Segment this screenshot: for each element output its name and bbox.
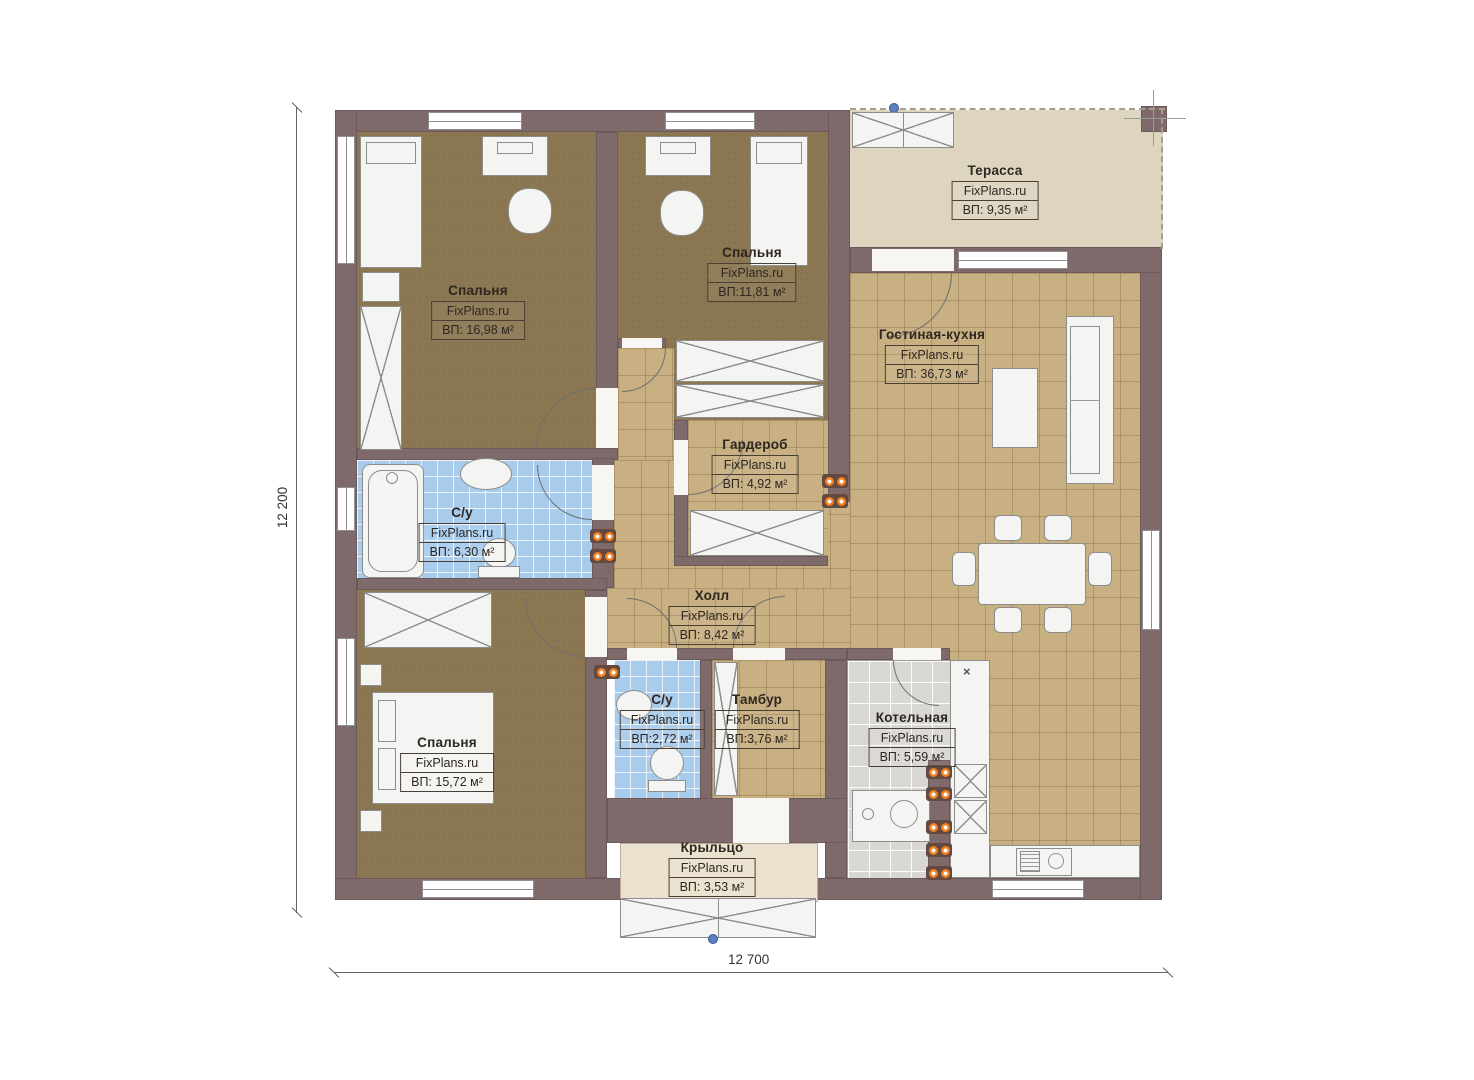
room-name: Терасса (952, 163, 1039, 178)
radiator (590, 549, 616, 563)
room-name: Гардероб (712, 437, 799, 452)
room-area: ВП: 15,72 м² (401, 773, 493, 791)
dining-chair (994, 607, 1022, 633)
radiator (926, 866, 952, 880)
radiator (594, 665, 620, 679)
window-bedroom-tl (428, 112, 522, 130)
brand-watermark: FixPlans.ru (870, 729, 955, 748)
room-area: ВП: 5,59 м² (870, 748, 955, 766)
bed-pillow (366, 142, 416, 164)
brand-watermark: FixPlans.ru (708, 264, 795, 283)
terrace-dashed-right (1161, 108, 1163, 249)
door-opening-bedroom-tl (596, 388, 618, 448)
wardrobe (676, 340, 824, 382)
desk-monitor (660, 142, 696, 154)
room-name: Тамбур (715, 692, 800, 707)
radiator (926, 787, 952, 801)
brand-watermark: FixPlans.ru (621, 711, 704, 730)
room-label-bedroom-bl: Спальня FixPlans.ru ВП: 15,72 м² (400, 735, 494, 792)
desk-chair (660, 190, 704, 236)
radiator (926, 820, 952, 834)
room-label-terrace: Терасса FixPlans.ru ВП: 9,35 м² (952, 163, 1039, 220)
room-label-boiler: Котельная FixPlans.ru ВП: 5,59 м² (869, 710, 956, 767)
porch-marker-dot (708, 934, 718, 944)
door-opening-terrace (872, 249, 954, 271)
nightstand (360, 810, 382, 832)
brand-watermark: FixPlans.ru (401, 754, 493, 773)
room-label-tambour: Тамбур FixPlans.ru ВП:3,76 м² (715, 692, 800, 749)
radiator (822, 474, 848, 488)
window-terrace-living (958, 251, 1068, 269)
window-left-bedroom-tl (337, 136, 355, 264)
room-name: Спальня (400, 735, 494, 750)
wall-tambour-right (825, 660, 847, 878)
window-left-bathroom1 (337, 487, 355, 531)
door-opening-bathroom1 (592, 465, 614, 520)
room-area: ВП:2,72 м² (621, 730, 704, 748)
room-area: ВП: 9,35 м² (953, 201, 1038, 219)
wall-top (335, 110, 850, 132)
room-area: ВП:11,81 м² (708, 283, 795, 301)
room-name: Спальня (431, 283, 525, 298)
room-name: Спальня (707, 245, 796, 260)
bed-pillow (756, 142, 802, 164)
room-area: ВП: 4,92 м² (713, 475, 798, 493)
dimension-label-height: 12 200 (275, 487, 290, 528)
room-name: Гостиная-кухня (879, 327, 985, 342)
wardrobe (364, 592, 492, 648)
window-bedroom-tm (665, 112, 755, 130)
dining-chair (1088, 552, 1112, 586)
radiator (822, 494, 848, 508)
door-opening-boiler (893, 648, 941, 660)
room-area: ВП:3,76 м² (716, 730, 799, 748)
room-area: ВП: 16,98 м² (432, 321, 524, 339)
bed-pillow (378, 748, 396, 790)
floor-plan-canvas: × Спальня FixPlans.ru ВП: 16,98 м² Спаль… (0, 0, 1474, 1080)
dimension-tick (292, 102, 303, 113)
window-bottom-kitchen (992, 880, 1084, 898)
door-opening-bedroom-bl (585, 597, 607, 657)
dining-table (978, 543, 1086, 605)
brand-watermark: FixPlans.ru (713, 456, 798, 475)
toilet-tank (478, 566, 520, 578)
toilet-tank (648, 780, 686, 792)
door-opening-entrance (733, 798, 789, 843)
door-opening-bathroom2 (627, 648, 677, 660)
room-label-hall: Холл FixPlans.ru ВП: 8,42 м² (669, 588, 756, 645)
stove-burner (954, 800, 987, 834)
desk-chair (508, 188, 552, 234)
brand-watermark: FixPlans.ru (432, 302, 524, 321)
dimension-line-left (296, 107, 297, 913)
axis-line-h (1124, 118, 1186, 119)
room-name: Холл (669, 588, 756, 603)
window-left-bedroom-bl (337, 638, 355, 726)
wall-bedroom3-top (357, 578, 607, 590)
room-name: Крыльцо (669, 840, 756, 855)
coffee-table (992, 368, 1038, 448)
washing-machine-dial (862, 808, 874, 820)
wall-entrance (607, 798, 847, 843)
room-area: ВП: 8,42 м² (670, 626, 755, 644)
bathtub-inner (368, 470, 418, 572)
brand-watermark: FixPlans.ru (670, 607, 755, 626)
kitchen-sink-grill (1020, 851, 1040, 872)
wall-garderob-bottom (674, 556, 828, 566)
brand-watermark: FixPlans.ru (886, 346, 978, 365)
room-area: ВП: 36,73 м² (886, 365, 978, 383)
wall-bedroom2-living (828, 110, 850, 502)
bed-pillow (378, 700, 396, 742)
sofa-divider (1070, 400, 1100, 401)
toilet-bowl (650, 746, 684, 780)
kitchen-marker: × (963, 664, 971, 679)
radiator (926, 843, 952, 857)
room-label-bedroom-tm: Спальня FixPlans.ru ВП:11,81 м² (707, 245, 796, 302)
sink (460, 458, 512, 490)
wardrobe (676, 384, 824, 418)
nightstand (360, 664, 382, 686)
dining-chair (952, 552, 976, 586)
room-label-bathroom1: С/у FixPlans.ru ВП: 6,30 м² (419, 505, 506, 562)
room-area: ВП: 6,30 м² (420, 543, 505, 561)
terrace-steps (852, 112, 954, 148)
room-label-bedroom-tl: Спальня FixPlans.ru ВП: 16,98 м² (431, 283, 525, 340)
room-name: С/у (419, 505, 506, 520)
desk-monitor (497, 142, 533, 154)
nightstand (362, 272, 400, 302)
washing-machine-drum (890, 800, 918, 828)
brand-watermark: FixPlans.ru (670, 859, 755, 878)
window-right-living (1142, 530, 1160, 630)
room-label-garderob: Гардероб FixPlans.ru ВП: 4,92 м² (712, 437, 799, 494)
dimension-line-bottom (334, 972, 1168, 973)
dining-chair (1044, 515, 1072, 541)
door-opening-garderob (674, 440, 688, 495)
dimension-label-width: 12 700 (728, 952, 769, 967)
window-bottom-bedroom-bl (422, 880, 534, 898)
door-opening-tambour (733, 648, 785, 660)
dining-chair (1044, 607, 1072, 633)
dining-chair (994, 515, 1022, 541)
brand-watermark: FixPlans.ru (716, 711, 799, 730)
brand-watermark: FixPlans.ru (420, 524, 505, 543)
brand-watermark: FixPlans.ru (953, 182, 1038, 201)
radiator (926, 765, 952, 779)
wardrobe (360, 306, 402, 450)
room-label-living-kitchen: Гостиная-кухня FixPlans.ru ВП: 36,73 м² (879, 327, 985, 384)
porch-steps (620, 898, 816, 938)
room-label-bathroom2: С/у FixPlans.ru ВП:2,72 м² (620, 692, 705, 749)
room-area: ВП: 3,53 м² (670, 878, 755, 896)
dimension-tick (292, 907, 303, 918)
radiator (590, 529, 616, 543)
bathtub-faucet (386, 472, 398, 484)
kitchen-sink-bowl (1048, 853, 1064, 869)
stove-burner (954, 764, 987, 798)
room-name: Котельная (869, 710, 956, 725)
room-label-porch: Крыльцо FixPlans.ru ВП: 3,53 м² (669, 840, 756, 897)
wardrobe (690, 510, 824, 556)
door-opening-bedroom-tm (622, 338, 662, 348)
axis-line-v (1153, 90, 1154, 146)
room-name: С/у (620, 692, 705, 707)
